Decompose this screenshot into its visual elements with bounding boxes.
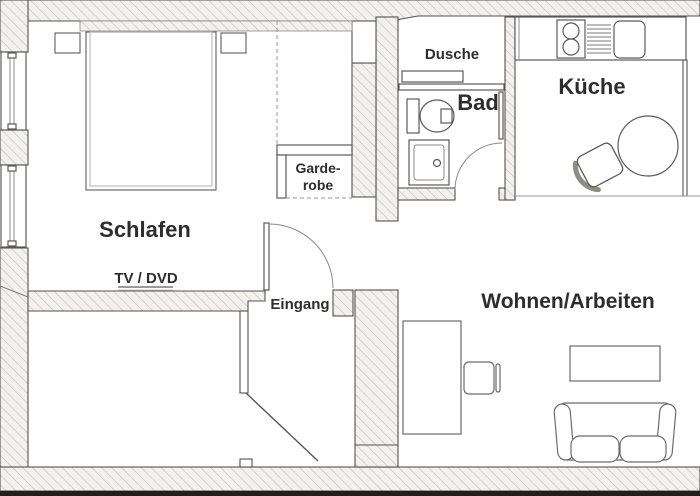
sofa-icon bbox=[554, 403, 677, 462]
left-wall-bottom bbox=[0, 248, 28, 491]
label-kueche: Küche bbox=[558, 74, 625, 99]
label-schlafen: Schlafen bbox=[99, 217, 191, 242]
nightstand-left-icon bbox=[55, 33, 80, 53]
hall-left-wall bbox=[352, 63, 376, 197]
desk-icon bbox=[403, 321, 461, 434]
toilet-tank-icon bbox=[407, 99, 419, 133]
burner-1 bbox=[563, 23, 579, 39]
coffee-table-icon bbox=[570, 346, 660, 381]
label-tv-dvd: TV / DVD bbox=[114, 270, 178, 287]
left-wall-pier bbox=[0, 130, 28, 165]
window-left-lower-icon bbox=[1, 165, 26, 247]
left-wall-top bbox=[0, 0, 28, 52]
window-left-upper-icon bbox=[1, 52, 26, 130]
entry-column bbox=[355, 290, 398, 467]
desk-chair-backrest bbox=[496, 364, 500, 392]
label-garderobe-1: Garde- bbox=[295, 160, 340, 176]
room-schlafen bbox=[55, 32, 246, 290]
bath-left-wall bbox=[376, 17, 398, 221]
entry-wall-stub bbox=[333, 290, 353, 316]
entry-partition-wall bbox=[240, 311, 248, 393]
tv-wall bbox=[28, 291, 265, 311]
bath-door-leaf bbox=[499, 92, 503, 139]
label-dusche: Dusche bbox=[425, 46, 479, 63]
bath-bottom-wall bbox=[398, 188, 455, 200]
image-bottom-border bbox=[0, 491, 700, 496]
floorplan-svg: Schlafen TV / DVD Eingang Garde- robe Du… bbox=[0, 0, 700, 496]
kitchen-sink-icon bbox=[614, 21, 645, 58]
room-bad bbox=[399, 71, 504, 185]
duct-shaft bbox=[352, 21, 376, 63]
bedroom-door-leaf bbox=[264, 223, 269, 290]
bed-icon bbox=[86, 32, 216, 190]
wardrobe-side-bar bbox=[277, 155, 286, 198]
bath-door-swing bbox=[455, 143, 502, 190]
label-wohnen: Wohnen/Arbeiten bbox=[481, 290, 654, 313]
desk-chair-icon bbox=[464, 362, 494, 394]
room-wohnen bbox=[403, 321, 676, 462]
shower-shelf-icon bbox=[402, 71, 463, 82]
wardrobe-top-bar bbox=[277, 145, 352, 155]
toilet-seat-icon bbox=[441, 109, 452, 123]
washbasin-icon bbox=[409, 140, 449, 185]
bottom-wall bbox=[0, 467, 700, 491]
washbasin-drain bbox=[434, 160, 441, 167]
bath-kitchen-wall bbox=[505, 17, 515, 200]
entry-door-hinge bbox=[240, 459, 252, 467]
room-kueche bbox=[515, 17, 686, 195]
nightstand-right-icon bbox=[221, 33, 246, 53]
burner-2 bbox=[563, 39, 579, 55]
dining-table-icon bbox=[618, 116, 678, 176]
entrance-door-leaf bbox=[246, 393, 318, 461]
label-bad: Bad bbox=[457, 90, 499, 115]
label-garderobe-2: robe bbox=[303, 177, 334, 193]
bedroom-top-lining bbox=[80, 21, 352, 31]
floorplan-image: Schlafen TV / DVD Eingang Garde- robe Du… bbox=[0, 0, 700, 496]
label-eingang: Eingang bbox=[270, 296, 329, 313]
kitchen-right-wall bbox=[683, 60, 687, 196]
bedroom-door-swing bbox=[269, 224, 333, 288]
